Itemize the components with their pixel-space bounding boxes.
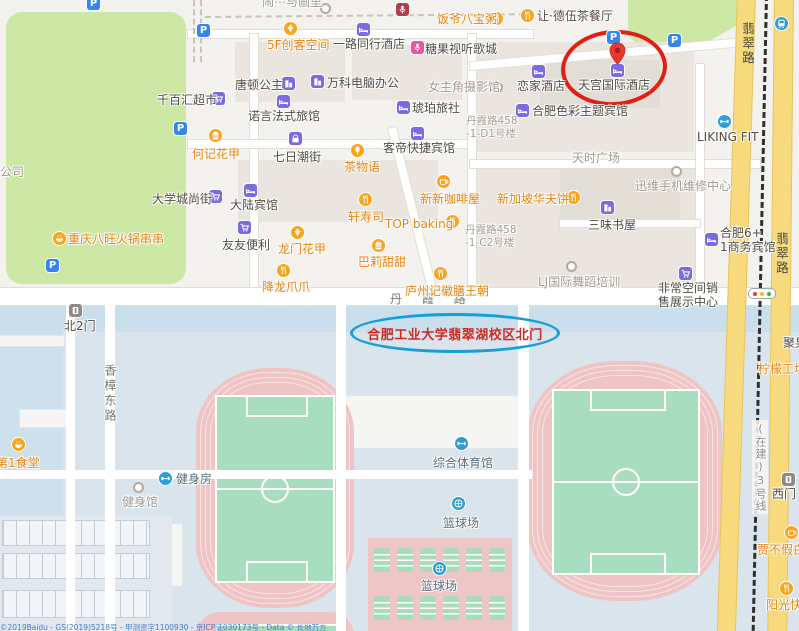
building-icon[interactable] <box>311 75 324 88</box>
poi-label[interactable]: 万科电脑办公 <box>327 76 399 90</box>
poi-label[interactable]: 女主角摄影馆 <box>428 80 500 94</box>
fork-icon[interactable] <box>359 193 372 206</box>
basketball-court <box>466 596 482 620</box>
poi-label[interactable]: 贾不假白 <box>757 543 799 557</box>
fork-icon[interactable] <box>277 264 290 277</box>
poi-label[interactable]: 七日潮街 <box>273 150 321 164</box>
poi-label[interactable]: 重庆八旺火锅串串 <box>68 232 164 246</box>
coffee-icon[interactable] <box>437 175 450 188</box>
destination-pin-icon[interactable] <box>608 42 627 70</box>
metro-line-label: (在建)3号线 <box>752 420 768 514</box>
poi-label[interactable]: 丹霞路458 -1-C2号楼 <box>465 224 517 249</box>
campus-gate-highlight-ellipse: 合肥工业大学翡翠湖校区北门 <box>350 313 560 353</box>
gymnasium-building <box>345 396 523 448</box>
dot-icon[interactable] <box>671 166 682 177</box>
poi-label[interactable]: 天宫国际酒店 <box>578 78 650 92</box>
poi-label[interactable]: 龙门花甲 <box>278 242 326 256</box>
parking-icon[interactable]: P <box>87 0 100 10</box>
poi-label[interactable]: 闹⋯与画里 <box>262 0 322 9</box>
campus-road <box>105 305 115 631</box>
poi-label[interactable]: 聚果缘 <box>783 336 799 350</box>
ball-icon[interactable] <box>433 562 446 575</box>
street <box>250 34 258 292</box>
poi-label[interactable]: 综合体育馆 <box>433 456 493 470</box>
popsicle-icon[interactable] <box>351 144 364 157</box>
basketball-court <box>489 548 505 572</box>
poi-label[interactable]: 非常空间销 售展示中心 <box>658 281 718 310</box>
mic-icon[interactable] <box>396 3 409 16</box>
poi-label[interactable]: 饭爷八宝粥 <box>437 12 497 26</box>
parking-icon[interactable]: P <box>174 122 187 135</box>
basketball-court <box>420 596 436 620</box>
poi-label[interactable]: 篮球场 <box>421 579 457 593</box>
poi-label[interactable]: 何记花甲 <box>192 147 240 161</box>
hotpot-icon[interactable] <box>53 232 66 245</box>
mic-icon[interactable] <box>411 41 424 54</box>
cart-icon[interactable] <box>238 221 251 234</box>
gym-icon[interactable] <box>718 115 731 128</box>
poi-label[interactable]: 丹霞路458 -1-D1号楼 <box>466 115 518 140</box>
gate-icon[interactable] <box>782 473 795 486</box>
poi-label[interactable]: 大陆宾馆 <box>230 198 278 212</box>
poi-label[interactable]: 恋家酒店 <box>517 79 565 93</box>
poi-label[interactable]: 巴莉甜甜 <box>358 255 406 269</box>
poi-label[interactable]: LIKING FIT <box>697 130 759 144</box>
stadium-track-left <box>196 368 354 608</box>
poi-label[interactable]: 大学城尚街 <box>152 192 212 206</box>
copyright: ©2019Baidu - GS(2019)5218号 - 甲测资字1100930… <box>0 622 360 631</box>
road-label-xiangzhang: 香樟东路 <box>102 364 119 424</box>
campus-building <box>0 336 64 346</box>
basketball-court <box>443 596 459 620</box>
campus-road <box>66 305 75 631</box>
map-canvas[interactable]: 丹 霞 路 香樟东路 翡翠路 翡翠路 (在建)3号线 <box>0 0 799 631</box>
poi-label[interactable]: 天时广场 <box>572 151 620 165</box>
poi-label[interactable]: 茶物语 <box>344 160 380 174</box>
poi-label[interactable]: 柠檬工坊 <box>758 362 799 376</box>
poi-label[interactable]: 降龙爪爪 <box>262 280 310 294</box>
soccer-field-left <box>215 395 335 583</box>
poi-label[interactable]: 千百汇超市 <box>157 93 217 107</box>
campus-road <box>336 305 346 631</box>
basketball-court <box>397 596 413 620</box>
bed-icon[interactable] <box>277 95 290 108</box>
parking-lot <box>0 516 172 631</box>
poi-label[interactable]: 客帝快捷宾馆 <box>383 141 455 155</box>
road-label-feicui-1: 翡翠路 <box>738 22 757 66</box>
bed-icon[interactable] <box>244 184 257 197</box>
poi-label[interactable]: 阳光快餐 <box>766 598 799 612</box>
poi-label[interactable]: 新新咖啡屋 <box>420 192 480 206</box>
fork-icon[interactable] <box>434 267 447 280</box>
basketball-court <box>374 548 390 572</box>
campus-gate-label: 合肥工业大学翡翠湖校区北门 <box>367 324 543 343</box>
ball-icon[interactable] <box>452 497 465 510</box>
hotpot-icon[interactable] <box>12 438 25 451</box>
poi-label[interactable]: 轩寿司 <box>348 210 384 224</box>
stadium-track-right <box>528 361 722 601</box>
bed-icon[interactable] <box>357 23 370 36</box>
cart-icon[interactable] <box>679 267 692 280</box>
poi-label[interactable]: 公司 <box>0 165 24 179</box>
building-icon[interactable] <box>601 201 614 214</box>
soccer-field-right <box>552 389 700 575</box>
dessert-icon[interactable] <box>291 226 304 239</box>
basketball-court <box>397 548 413 572</box>
poi-label[interactable]: 琥珀旅社 <box>412 101 460 115</box>
poi-label[interactable]: 新加坡华夫饼 <box>497 192 569 206</box>
gym-icon[interactable] <box>159 472 172 485</box>
poi-label[interactable]: LJ国际舞蹈培训 <box>538 275 620 289</box>
poi-label[interactable]: TOP baking <box>385 217 453 231</box>
poi-label[interactable]: 北2门 <box>64 319 96 333</box>
poi-label[interactable]: 唐顿公主 <box>235 78 283 92</box>
coffee-icon[interactable] <box>785 526 798 539</box>
campus-road <box>518 305 529 631</box>
parking-icon[interactable]: P <box>197 24 210 37</box>
boundary-dashed-line <box>193 0 195 62</box>
bed-icon[interactable] <box>532 65 545 78</box>
basketball-court <box>489 596 505 620</box>
burger-icon[interactable] <box>209 129 222 142</box>
poi-label[interactable]: 迅维手机维修中心 <box>635 179 731 193</box>
poi-label[interactable]: 篮球场 <box>443 516 479 530</box>
fork-icon[interactable] <box>780 582 793 595</box>
gate-icon[interactable] <box>69 304 82 317</box>
fork-icon[interactable] <box>521 9 534 22</box>
dot-icon[interactable] <box>133 482 144 493</box>
poi-label[interactable]: 一路同行酒店 <box>333 37 405 51</box>
poi-label[interactable]: 合肥色彩主题宾馆 <box>532 104 628 118</box>
bag-icon[interactable] <box>289 132 302 145</box>
building-icon[interactable] <box>282 77 295 90</box>
poi-label[interactable]: 健身房 <box>176 472 212 486</box>
gym-icon[interactable] <box>455 437 468 450</box>
dot-icon[interactable] <box>566 261 577 272</box>
poi-label[interactable]: 西门 <box>772 487 796 501</box>
parking-icon[interactable]: P <box>46 259 59 272</box>
traffic-light-icon <box>748 288 776 299</box>
campus-road <box>0 470 532 479</box>
parking-icon[interactable]: P <box>668 34 681 47</box>
poi-label[interactable]: 三味书屋 <box>588 218 636 232</box>
bed-icon[interactable] <box>397 101 410 114</box>
campus-building <box>20 410 67 427</box>
poi-label[interactable]: 5F创客空间 <box>267 38 330 52</box>
poi-label[interactable]: 庐州记徽膳王朝 <box>405 284 489 298</box>
poi-label[interactable]: 诺言法式旅馆 <box>248 109 320 123</box>
poi-label[interactable]: 第1食堂 <box>0 456 40 470</box>
street <box>696 64 704 292</box>
bed-icon[interactable] <box>705 233 718 246</box>
poi-label[interactable]: 让·德伍茶餐厅 <box>537 9 613 23</box>
burger-icon[interactable] <box>372 239 385 252</box>
poi-label[interactable]: 健身馆 <box>122 495 158 509</box>
basketball-court <box>374 596 390 620</box>
dessert-icon[interactable] <box>284 22 297 35</box>
basketball-court <box>466 548 482 572</box>
poi-label[interactable]: 合肥6+ 1商务宾馆 <box>720 226 776 255</box>
poi-label[interactable]: 友友便利 <box>222 238 270 252</box>
bed-icon[interactable] <box>411 127 424 140</box>
bus-icon[interactable] <box>775 17 788 30</box>
poi-label[interactable]: 糖果视听歌城 <box>425 42 497 56</box>
